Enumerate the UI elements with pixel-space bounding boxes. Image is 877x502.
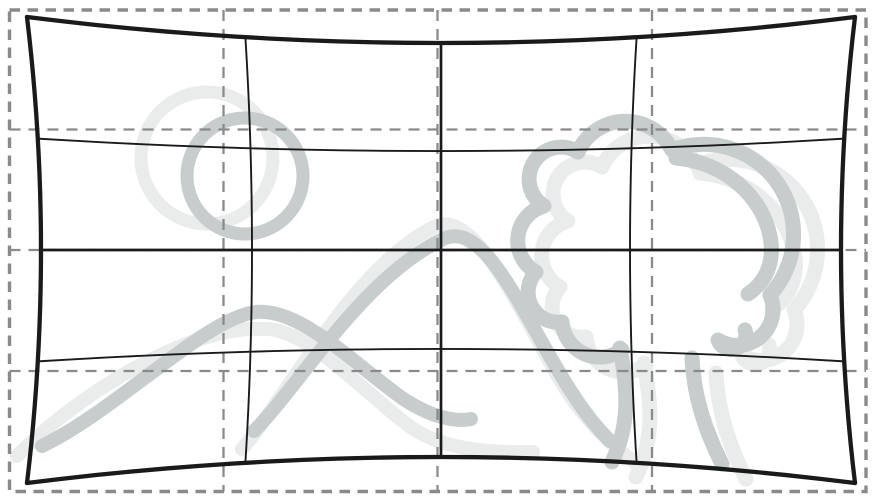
sun-sketch-light bbox=[141, 92, 273, 224]
tree-sketch-dark-shape bbox=[676, 158, 771, 294]
tree-sketch-dark-shape bbox=[518, 121, 794, 357]
figure-canvas bbox=[0, 0, 877, 502]
sun-sketch-light-shape bbox=[141, 92, 273, 224]
distorted-grid bbox=[27, 17, 855, 483]
distorted-grid-hline-1 bbox=[27, 17, 855, 43]
distortion-figure bbox=[0, 0, 877, 502]
tree-sketch-light-shape bbox=[636, 363, 650, 477]
